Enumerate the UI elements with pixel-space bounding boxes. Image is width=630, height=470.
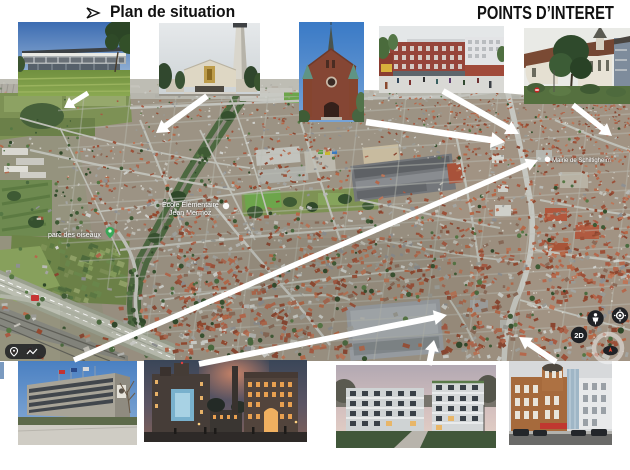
svg-text:2D: 2D — [574, 331, 584, 340]
